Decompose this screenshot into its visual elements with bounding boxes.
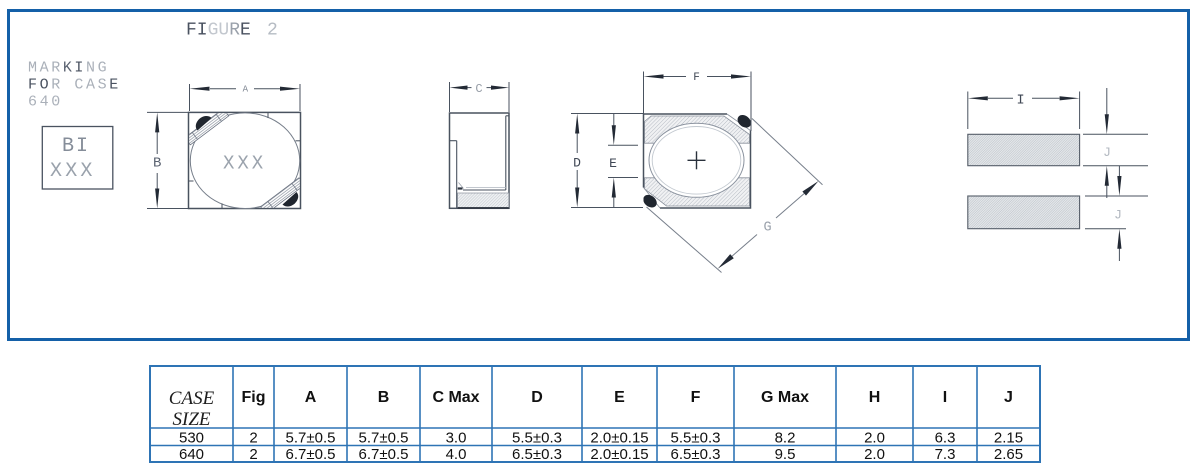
svg-text:H: H — [869, 389, 881, 406]
svg-text:G: G — [763, 221, 771, 236]
svg-text:C: C — [475, 82, 482, 96]
svg-text:6.7±0.5: 6.7±0.5 — [359, 446, 409, 463]
svg-text:G Max: G Max — [761, 389, 809, 406]
svg-text:J: J — [1114, 208, 1122, 223]
svg-text:8.2: 8.2 — [775, 430, 796, 447]
svg-text:CASE: CASE — [169, 388, 215, 409]
svg-text:B: B — [378, 389, 390, 406]
svg-text:B: B — [153, 155, 161, 171]
svg-text:2.0: 2.0 — [864, 446, 885, 463]
svg-text:6.7±0.5: 6.7±0.5 — [286, 446, 336, 463]
svg-text:F: F — [693, 72, 700, 84]
svg-text:7.3: 7.3 — [935, 446, 956, 463]
svg-text:BI: BI — [62, 135, 90, 158]
svg-text:J: J — [1004, 389, 1013, 406]
svg-text:I: I — [943, 389, 947, 406]
svg-text:D: D — [573, 156, 581, 171]
svg-text:XXX: XXX — [223, 153, 266, 175]
svg-text:6.3: 6.3 — [935, 430, 956, 447]
svg-text:2: 2 — [267, 21, 278, 41]
svg-text:FOR CASE: FOR CASE — [28, 77, 121, 94]
svg-text:SIZE: SIZE — [173, 409, 211, 430]
svg-text:MARKING: MARKING — [28, 60, 109, 77]
svg-text:2.0±0.15: 2.0±0.15 — [590, 446, 648, 463]
svg-text:5.5±0.3: 5.5±0.3 — [512, 430, 562, 447]
svg-text:6.5±0.3: 6.5±0.3 — [512, 446, 562, 463]
svg-text:3.0: 3.0 — [446, 430, 467, 447]
svg-text:A: A — [305, 389, 317, 406]
svg-text:2.65: 2.65 — [994, 446, 1023, 463]
svg-text:2: 2 — [249, 430, 257, 447]
svg-text:D: D — [531, 389, 543, 406]
svg-text:5.5±0.3: 5.5±0.3 — [671, 430, 721, 447]
svg-text:2.15: 2.15 — [994, 430, 1023, 447]
svg-text:E: E — [609, 156, 617, 171]
svg-text:9.5: 9.5 — [775, 446, 796, 463]
svg-text:I: I — [1016, 94, 1024, 109]
svg-text:2.0±0.15: 2.0±0.15 — [590, 430, 648, 447]
svg-text:530: 530 — [179, 430, 204, 447]
svg-text:FIGURE: FIGURE — [186, 21, 251, 41]
svg-text:5.7±0.5: 5.7±0.5 — [359, 430, 409, 447]
svg-text:5.7±0.5: 5.7±0.5 — [286, 430, 336, 447]
svg-text:J: J — [1103, 145, 1111, 160]
svg-text:640: 640 — [28, 94, 63, 111]
svg-text:2: 2 — [249, 446, 257, 463]
svg-text:4.0: 4.0 — [446, 446, 467, 463]
svg-text:A: A — [243, 85, 249, 95]
svg-text:C Max: C Max — [432, 389, 479, 406]
svg-text:XXX: XXX — [50, 160, 96, 183]
svg-text:F: F — [691, 389, 701, 406]
svg-text:2.0: 2.0 — [864, 430, 885, 447]
svg-text:640: 640 — [179, 446, 204, 463]
svg-text:Fig: Fig — [242, 389, 266, 406]
svg-text:6.5±0.3: 6.5±0.3 — [671, 446, 721, 463]
svg-text:E: E — [614, 389, 625, 406]
